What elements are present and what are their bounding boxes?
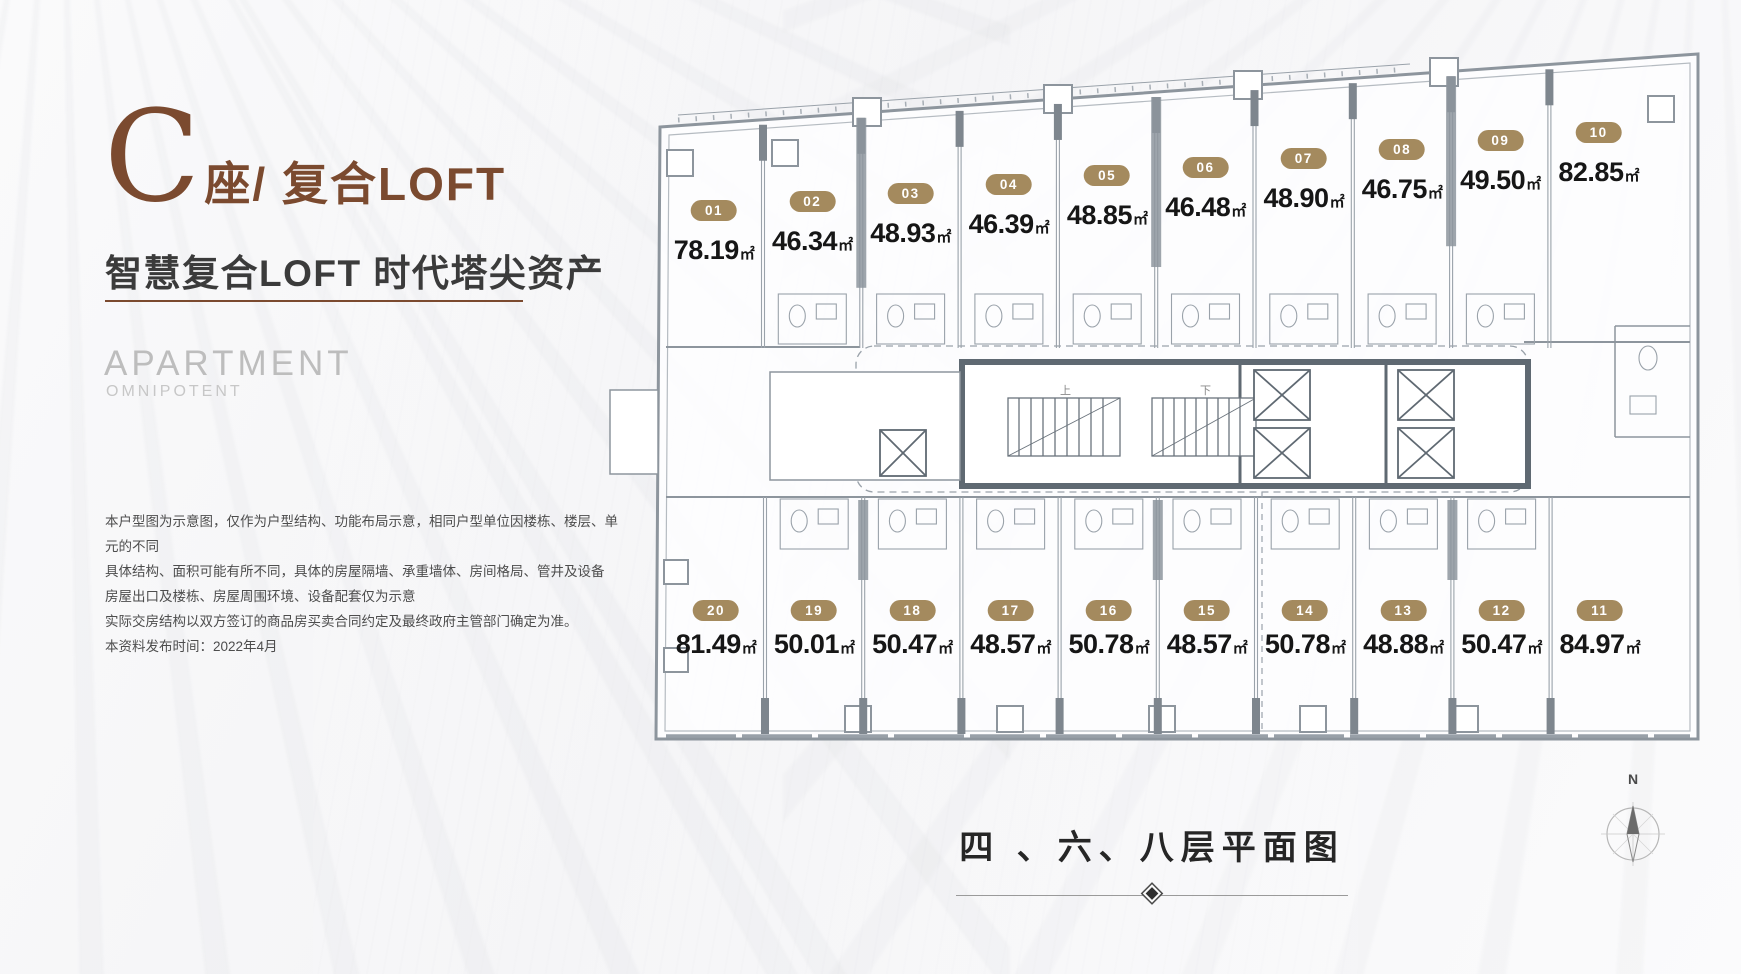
floor-plan-drawing: 上 下 xyxy=(0,0,1741,974)
floorplan-poster: C 座/ 复合LOFT 智慧复合LOFT 时代塔尖资产 APARTMENT OM… xyxy=(0,0,1741,974)
caption-divider xyxy=(956,895,1348,896)
stair-up-label: 上 xyxy=(1060,384,1071,397)
north-label: N xyxy=(1628,771,1638,787)
compass-icon: N xyxy=(1598,768,1668,878)
caption-block: 四 、六、八层平面图 xyxy=(956,820,1348,896)
stair-down-label: 下 xyxy=(1200,385,1211,397)
floor-caption: 四 、六、八层平面图 xyxy=(956,820,1348,869)
